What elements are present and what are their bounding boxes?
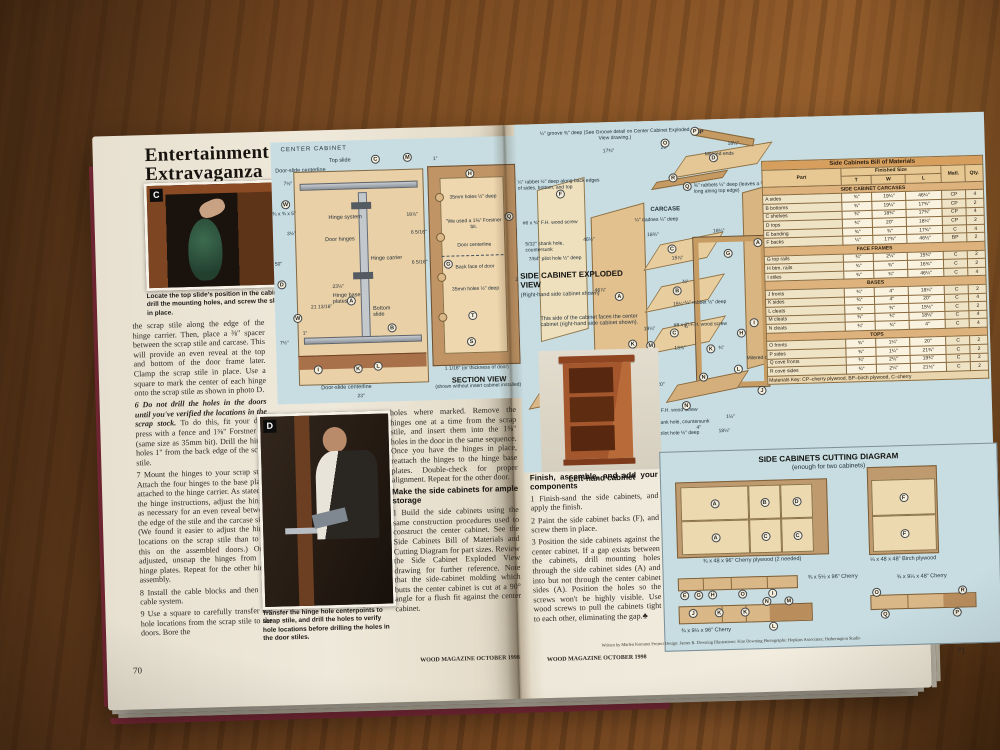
cutting-diagram-panel: SIDE CABINETS CUTTING DIAGRAM (enough fo…: [659, 442, 1000, 651]
center-cabinet-diagram: CENTER CABINET Door-slide centerline Top…: [270, 136, 529, 405]
paragraph: 8 Install the cable blocks and then the …: [140, 584, 272, 607]
dim-three-quarter-a: ¾": [682, 280, 688, 286]
cutting-board-5-5x96: [678, 575, 798, 591]
page-number-70: 70: [133, 665, 142, 675]
paragraph: 7 Mount the hinges to your scrap stile. …: [136, 467, 271, 586]
part-badge-f: F: [900, 528, 909, 537]
part-badge-p: P: [953, 608, 962, 617]
paragraph: 2 Paint the side cabinet backs (F), and …: [531, 513, 659, 536]
dim-18-7-8: 18⅞": [406, 213, 418, 219]
cabinet-base: [563, 458, 635, 466]
cut-piece-a2: A: [681, 519, 750, 555]
part-badge-q: Q: [683, 182, 692, 191]
paragraph: 1 Finish-sand the side cabinets, and app…: [530, 491, 658, 514]
dim-15-25: 15¼": [673, 302, 685, 308]
cove-section: [943, 593, 975, 607]
sv-forstner: "We used a 1⅜" Forstner bit.: [445, 218, 503, 231]
hinge-carrier-label: Hinge carrier: [371, 255, 405, 262]
subhead-make-side-cabinets: Make the side cabinets for ample storage: [392, 484, 518, 506]
dim-4-b: 4": [696, 426, 701, 432]
cut-piece-d: D: [780, 484, 813, 519]
cut-line: [767, 577, 768, 588]
photo-ref-badge-c: C: [371, 155, 380, 164]
bom-header-matl: Matl.: [941, 164, 966, 182]
dim-19-25: 19¼": [644, 327, 656, 333]
photo-ref-badge-d: D: [277, 280, 286, 289]
left-hand-cabinet-photo: [538, 348, 661, 472]
article-title: Entertainment Extravaganza: [144, 144, 269, 185]
bom-header-part: Part: [762, 168, 841, 187]
photo-of-magazine-on-table: Entertainment Extravaganza C Locate the …: [0, 0, 1000, 750]
dim-18-75: 18¾": [647, 233, 659, 239]
carcase-label: CARCASE: [650, 206, 680, 213]
cut-piece-f2: F: [872, 514, 937, 552]
paragraph: holes where marked. Remove the hinges on…: [390, 405, 518, 485]
paragraph: 3 Position the side cabinets against the…: [532, 534, 662, 624]
cut-piece-c2: C: [781, 518, 814, 553]
sv-dim-6516b: 6 5/16": [412, 260, 428, 266]
face-frame: [693, 236, 769, 388]
cutting-board2-caption: ¾ x 5½ x 96" Cherry: [800, 573, 858, 581]
dim-18-25-base: 18¼": [719, 429, 731, 435]
cabinet-opening: [569, 367, 614, 393]
sv-dim-1: 1": [433, 157, 438, 163]
dim-17-75: 17¾": [603, 149, 615, 155]
cutting-sheet-birch: F F: [867, 465, 939, 555]
hinge-bottom: [353, 272, 373, 280]
photo-d-label: D: [263, 420, 276, 433]
part-badge-g: G: [694, 591, 703, 600]
cut-piece-c: C: [749, 519, 782, 554]
cutting-board4-caption: ¾ x 9¼ x 48" Cherry: [870, 572, 974, 581]
dim-18-25-top: 18¼": [728, 142, 740, 148]
cut-line: [703, 579, 704, 590]
part-badge-o: O: [738, 590, 747, 599]
part-badge-c: C: [793, 530, 802, 539]
part-badge-j: J: [757, 386, 766, 395]
part-badge-o: O: [660, 138, 669, 147]
dim-7-5-bot: 7½": [280, 341, 289, 347]
cabinet-opening: [570, 425, 615, 451]
door-slide-centerline-bottom-label: Door-slide centerline: [321, 384, 372, 391]
dadoes-note: ¼" dadoes ¼" deep: [635, 217, 679, 224]
part-badge-m: M: [403, 153, 412, 162]
bom-header-qty: Qty.: [965, 164, 983, 182]
paragraph: 9 Use a square to carefully transfer the…: [140, 606, 273, 638]
dim-15-875: 15⅞": [672, 256, 684, 262]
part-badge-i: I: [768, 589, 777, 598]
top-slide-label: Top slide: [329, 157, 351, 164]
exploded-view-title: SIDE CABINET EXPLODED VIEW: [520, 270, 625, 291]
part-badge-a: A: [710, 499, 719, 508]
paragraph: 1 Build the side cabinets using the same…: [393, 505, 522, 614]
cut-piece-b: B: [748, 485, 781, 520]
photo-d: D: [257, 410, 396, 610]
cutting-board-9-25x48: [870, 592, 976, 610]
hinge-top: [351, 202, 371, 210]
dim-50: 50": [275, 262, 282, 268]
dim-w-part: ¾ x ¾ x 5": [272, 212, 296, 218]
photo-c-label: C: [150, 189, 163, 202]
hinge-system-label: Hinge system: [328, 214, 361, 221]
door-hinges-label: Door hinges: [325, 236, 355, 243]
dim-1: 1": [303, 332, 308, 338]
body-column-2: holes where marked. Remove the hinges on…: [390, 405, 522, 617]
body-column-3: Finish, assemble, and add your component…: [530, 470, 662, 627]
dim-1-5: 1½": [726, 415, 735, 421]
shank-note: 5/32" shank hole, countersunk: [525, 241, 587, 254]
page-number-71: 71: [957, 645, 966, 655]
part-badge-e: E: [680, 591, 689, 600]
part-badge-f: F: [899, 492, 908, 501]
paragraph: the scrap stile along the edge of the hi…: [132, 318, 266, 398]
cutting-sheet-cherry-plywood: A B D A C C: [675, 478, 829, 558]
part-badge-a: A: [711, 533, 720, 542]
photo-c-caption: Locate the top slide's position in the c…: [147, 289, 288, 318]
body-column-1: the scrap stile along the edge of the hi…: [132, 318, 273, 641]
part-badge-d: D: [792, 496, 801, 505]
dim-13-875: 13⅞": [674, 346, 686, 352]
part-badge-h: H: [708, 590, 717, 599]
dim-23: 23": [357, 394, 364, 400]
dim-23-1-8: 23⅛": [332, 285, 344, 291]
magazine-spread: Entertainment Extravaganza C Locate the …: [92, 114, 932, 711]
dim-three-quarter-c: ¾": [718, 346, 724, 352]
photo-c: C: [143, 179, 285, 291]
dim-7-5-top: 7½": [283, 182, 292, 188]
cabinet-opening: [570, 396, 615, 422]
part-badge-b: B: [760, 497, 769, 506]
bottom-slide-label: Bottom slide: [373, 305, 403, 318]
part-badge-c: C: [761, 531, 770, 540]
part-badge-w: W: [281, 200, 290, 209]
dim-18-25-frame: 18¼": [713, 229, 725, 235]
cut-piece-f: F: [871, 478, 936, 516]
dim-3-5: 3½": [287, 232, 296, 238]
part-badge-q: Q: [881, 610, 890, 619]
sv-dim-6516a: 6 5/16": [411, 230, 427, 236]
photo-d-caption: Transfer the hinge hole centerpoints to …: [262, 606, 395, 643]
cove-section: [769, 604, 811, 621]
cutting-birch-caption: ¼ x 48 x 48" Birch plywood: [849, 555, 957, 564]
cutting-board3-caption: ¾ x 9¼ x 96" Cherry: [681, 625, 791, 634]
cut-piece-a: A: [680, 485, 749, 521]
dim-21-13-16: 21 13/16": [311, 305, 332, 311]
cut-line: [731, 578, 732, 589]
center-cabinet-title: CENTER CABINET: [281, 146, 348, 154]
paragraph: 6 Do not drill the holes in the doors un…: [135, 397, 269, 468]
section-view-subtitle: (shown without insert cabinet installed): [423, 382, 533, 391]
subhead-finish-assemble: Finish, assemble, and add your component…: [530, 470, 658, 492]
cut-line: [907, 595, 908, 608]
dim-46-875: 46⅞": [595, 288, 607, 294]
bill-of-materials-table: Side Cabinets Bill of Materials Part Fin…: [761, 155, 989, 386]
